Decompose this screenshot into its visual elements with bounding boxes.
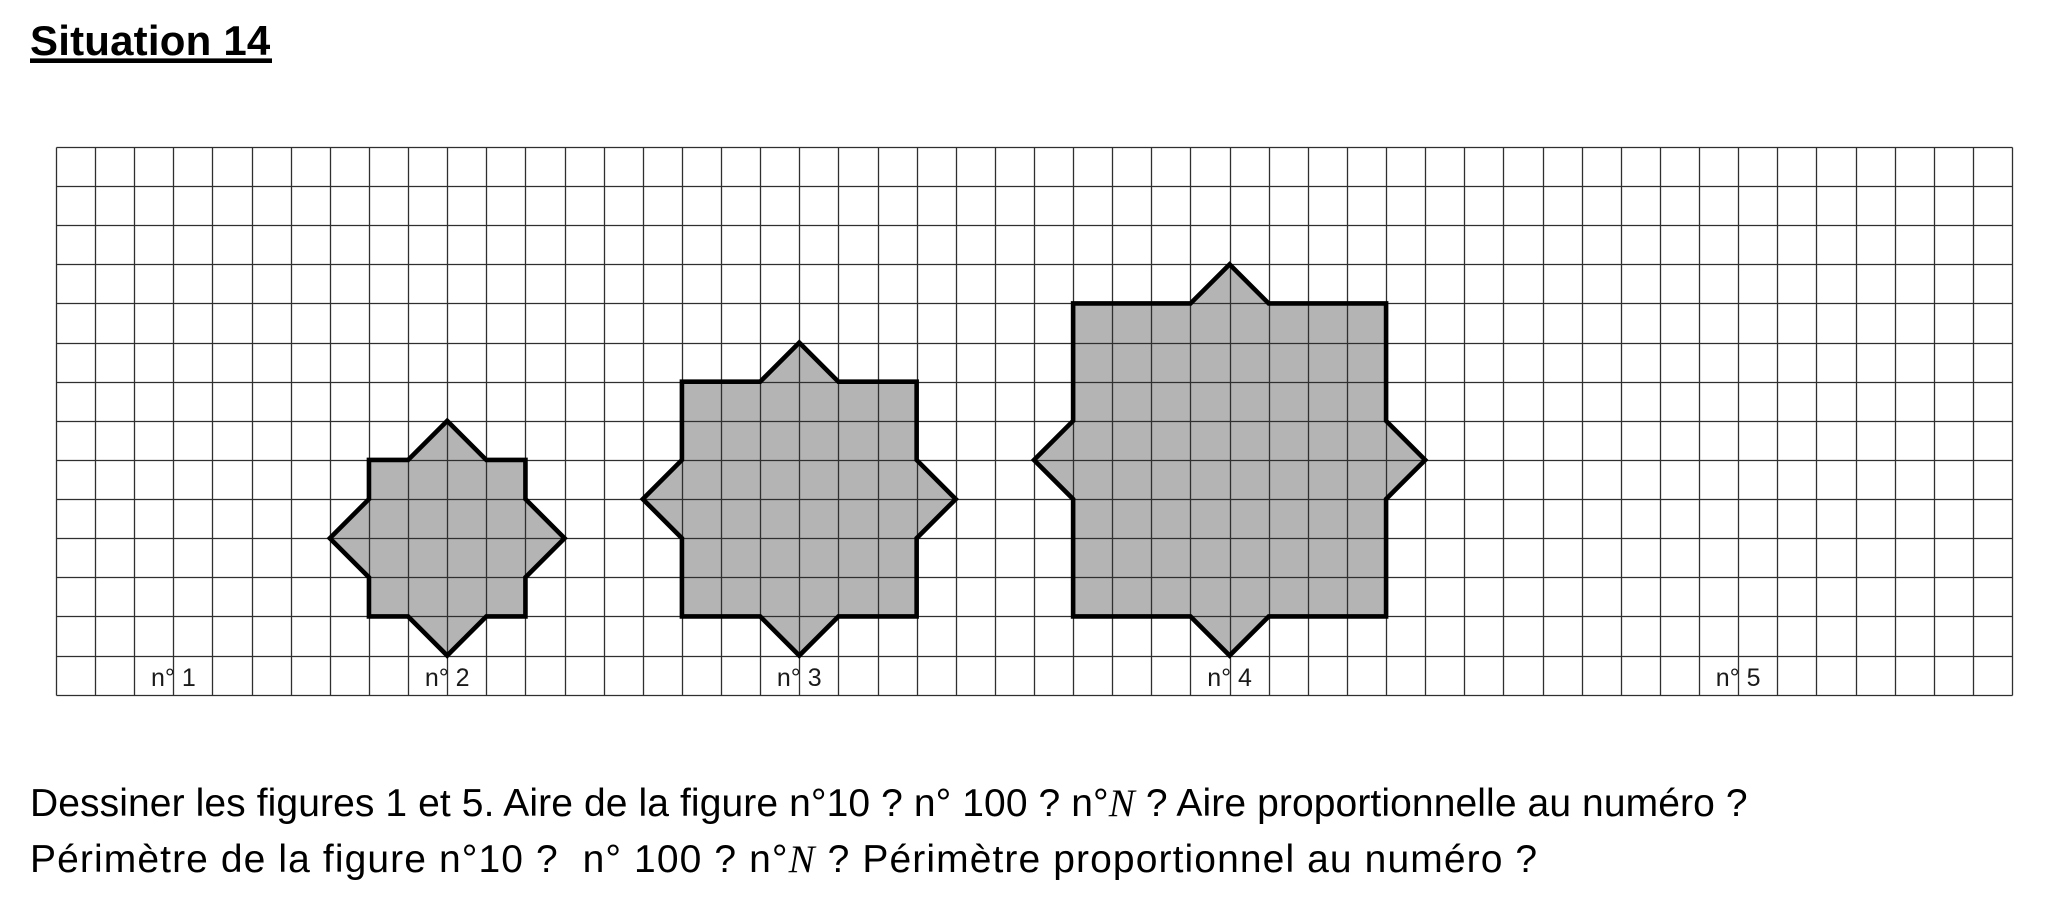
svg-text:n° 5: n° 5 (1716, 664, 1761, 692)
svg-text:Dessiner les figures 1 et 5. A: Dessiner les figures 1 et 5. Aire de la … (30, 782, 1748, 825)
svg-text:Situation 14: Situation 14 (30, 17, 271, 64)
svg-text:Périmètre de la figure n°10 ?: Périmètre de la figure n°10 ? n° 100 ? n… (30, 838, 1538, 881)
svg-text:n° 3: n° 3 (777, 664, 822, 692)
svg-text:n° 4: n° 4 (1207, 664, 1252, 692)
svg-text:n° 2: n° 2 (425, 664, 470, 692)
svg-text:n° 1: n° 1 (151, 664, 196, 692)
